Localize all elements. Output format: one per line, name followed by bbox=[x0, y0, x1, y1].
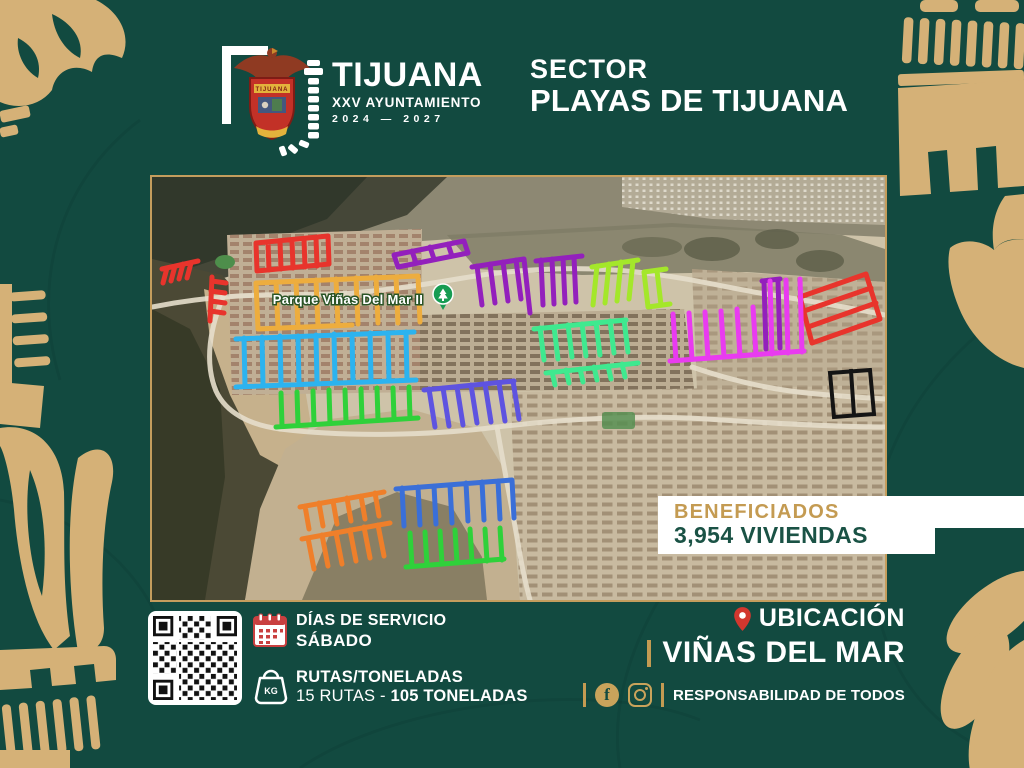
calendar-icon bbox=[252, 612, 288, 649]
instagram-icon[interactable] bbox=[628, 683, 652, 707]
gold-divider-bar bbox=[661, 683, 664, 707]
beneficiaries-label: BENEFICIADOS bbox=[674, 501, 935, 523]
shield-icon: TIJUANA bbox=[250, 78, 294, 139]
park-label: Parque Viñas Del Mar II bbox=[273, 292, 423, 307]
location-value-row: VIÑAS DEL MAR bbox=[583, 636, 905, 670]
sector-label: SECTOR bbox=[530, 55, 848, 83]
brand-name: TIJUANA bbox=[332, 58, 483, 92]
tagline: RESPONSABILIDAD DE TODOS bbox=[673, 687, 905, 704]
location-block: UBICACIÓN VIÑAS DEL MAR f RESPONSABILIDA… bbox=[583, 604, 905, 707]
routes-value-prefix: 15 RUTAS - bbox=[296, 687, 391, 705]
routes-tonnage-value: 15 RUTAS - 105 TONELADAS bbox=[296, 687, 528, 706]
qr-code bbox=[148, 611, 242, 705]
location-pin-icon bbox=[733, 606, 752, 632]
crest-text: TIJUANA bbox=[255, 87, 288, 93]
routes-tonnage-label: RUTAS/TONELADAS bbox=[296, 668, 463, 687]
brand-block: TIJUANA XXV AYUNTAMIENTO 2024 — 2027 bbox=[332, 58, 483, 125]
badge-ribbon-tail bbox=[935, 496, 1024, 528]
tijuana-city-crest-logo: TIJUANA bbox=[212, 38, 332, 166]
park-patch bbox=[602, 412, 635, 429]
route-red-top bbox=[256, 236, 329, 271]
facebook-icon[interactable]: f bbox=[595, 683, 619, 707]
brand-period: 2024 — 2027 bbox=[332, 113, 483, 125]
kg-weight-icon: KG bbox=[252, 666, 290, 708]
location-value: VIÑAS DEL MAR bbox=[662, 636, 905, 670]
sector-title-block: SECTOR PLAYAS DE TIJUANA bbox=[530, 55, 848, 118]
gold-divider-bar bbox=[647, 640, 651, 667]
beneficiaries-value: 3,954 VIVIENDAS bbox=[674, 523, 935, 548]
park-patch bbox=[215, 255, 235, 269]
sector-name: PLAYAS DE TIJUANA bbox=[530, 85, 848, 118]
location-label-row: UBICACIÓN bbox=[583, 604, 905, 633]
routes-value-bold: 105 TONELADAS bbox=[391, 687, 528, 705]
flyer-canvas: TIJUANA TIJUANA XXV AYUNTAMIENTO 2024 — … bbox=[0, 0, 1024, 768]
beneficiaries-badge: BENEFICIADOS 3,954 VIVIENDAS bbox=[658, 496, 935, 554]
brand-subtitle: XXV AYUNTAMIENTO bbox=[332, 95, 483, 110]
gold-divider-bar bbox=[583, 683, 586, 707]
kg-icon-label: KG bbox=[264, 686, 278, 696]
location-label: UBICACIÓN bbox=[759, 604, 905, 633]
top-left-motif-icon bbox=[0, 0, 126, 138]
left-middle-motif-icon bbox=[0, 284, 51, 428]
social-tagline-row: f RESPONSABILIDAD DE TODOS bbox=[583, 683, 905, 707]
top-right-motif-icon bbox=[898, 0, 1024, 368]
bottom-right-motif-icon bbox=[927, 556, 1024, 768]
bottom-left-motif-icon bbox=[0, 427, 116, 768]
service-days-label: DÍAS DE SERVICIO bbox=[296, 612, 446, 630]
service-days-value: SÁBADO bbox=[296, 631, 372, 651]
